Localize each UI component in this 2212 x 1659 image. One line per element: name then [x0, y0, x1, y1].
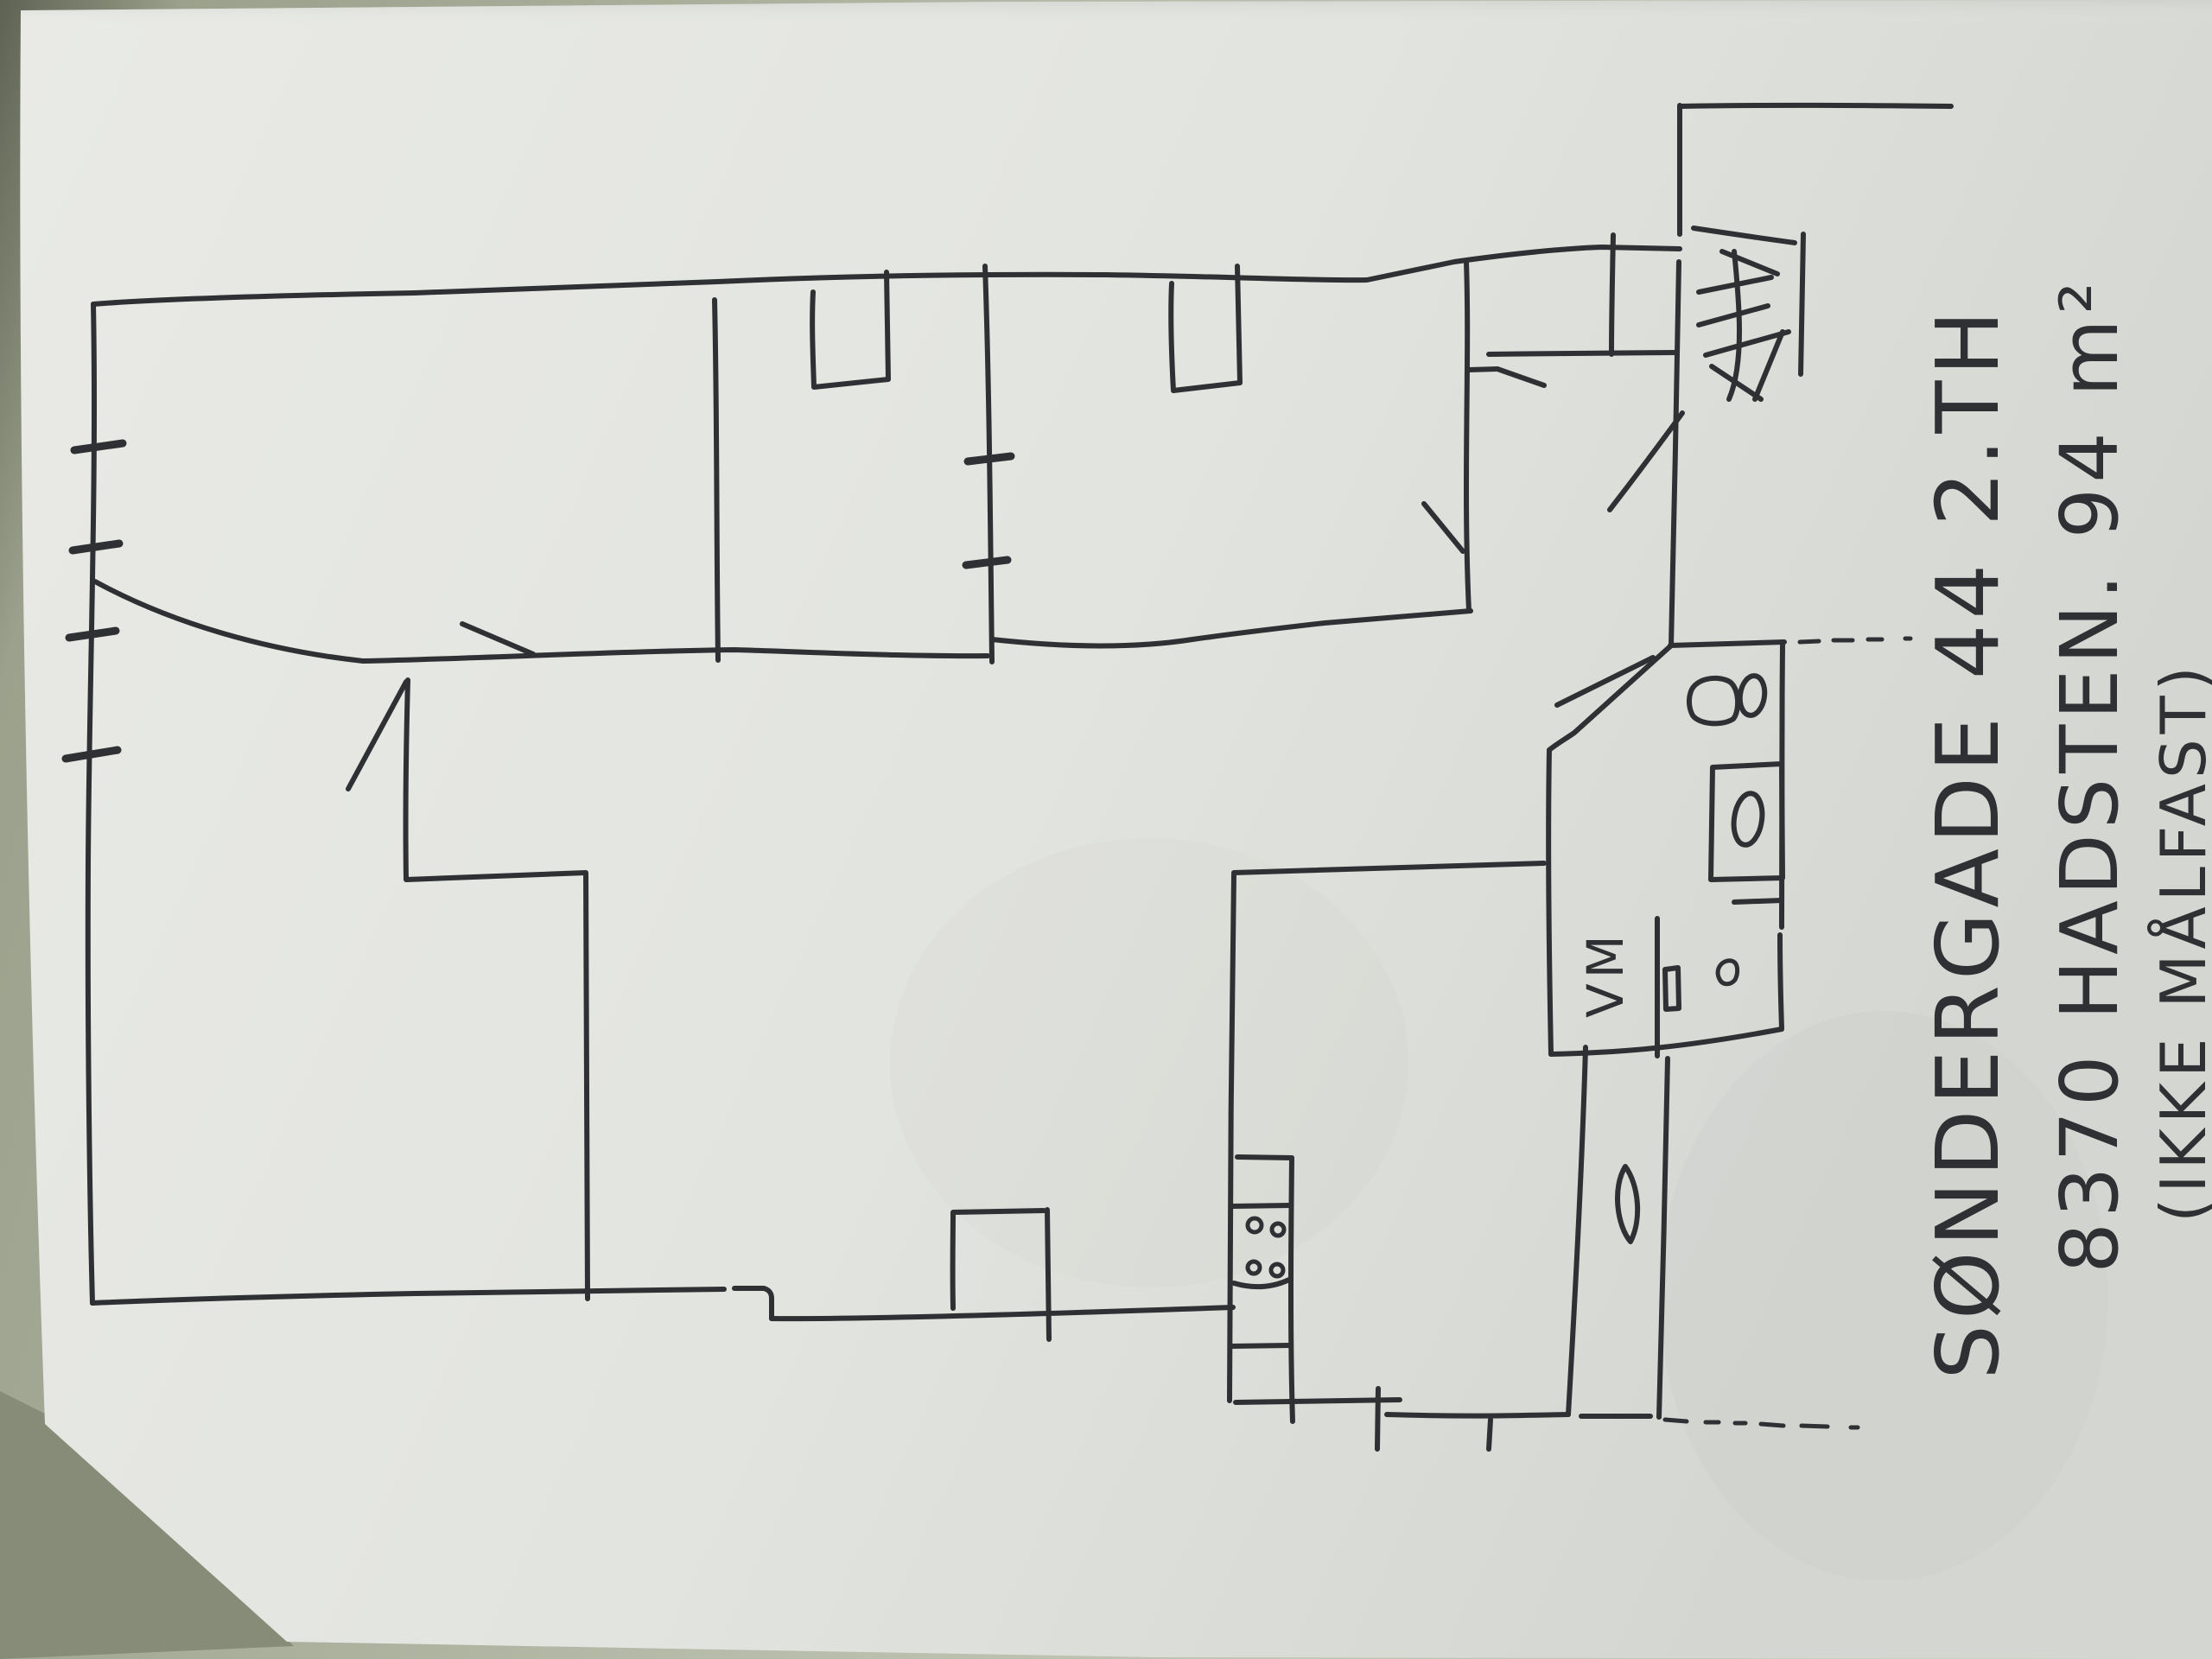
stairs-right	[1801, 234, 1803, 374]
dash	[1802, 1426, 1827, 1427]
dash	[1800, 641, 1819, 642]
dash	[1665, 1420, 1687, 1421]
floor-plan-canvas: VM SØNDERGADE 44 2.TH 8370 HADSTEN. 94 m…	[0, 0, 2212, 1659]
bathroom-wall-top	[1670, 642, 1784, 645]
annotation-line2: 8370 HADSTEN. 94 m²	[2044, 276, 2136, 1273]
hall-closet-wall	[1611, 235, 1613, 354]
paper-smudge	[1659, 1011, 2108, 1581]
counter-right	[1291, 1158, 1293, 1421]
kitchen-wall-bottom-upper	[1236, 1400, 1400, 1402]
paper	[20, 0, 2212, 1659]
door-tick	[968, 456, 1011, 461]
counter-divider	[1232, 1205, 1290, 1206]
wall-divider-room1-room2	[715, 300, 718, 660]
bathroom-wall-left	[1548, 750, 1551, 1054]
photo-of-floor-plan-sketch: VM SØNDERGADE 44 2.TH 8370 HADSTEN. 94 m…	[0, 0, 2212, 1659]
wall-room3-right	[1466, 262, 1469, 611]
sink-shelf	[1734, 900, 1782, 902]
kitchen-wall-bottom-lower	[1387, 1414, 1568, 1416]
annotation-line3: (IKKE MÅLFAST)	[2147, 661, 2212, 1222]
hall-door-stub	[1469, 369, 1497, 370]
annotation-line1: SØNDERGADE 44 2.TH	[1917, 305, 2018, 1379]
kitchen-door-jamb	[1377, 1389, 1378, 1449]
stairwell-wall-top	[1680, 105, 1951, 106]
paper-smudge	[890, 838, 1408, 1287]
dash	[1761, 1424, 1783, 1426]
washing-machine-label: VM	[1576, 930, 1635, 1018]
counter-divider	[1230, 1345, 1290, 1346]
fireplace-right	[1047, 1210, 1049, 1339]
hall-wall-bottom	[1489, 353, 1676, 354]
counter-top	[1237, 1157, 1292, 1158]
bathroom-wall-right-lower	[1780, 935, 1782, 1028]
door-tick	[966, 560, 1007, 565]
kitchen-door-jamb	[1489, 1420, 1491, 1449]
